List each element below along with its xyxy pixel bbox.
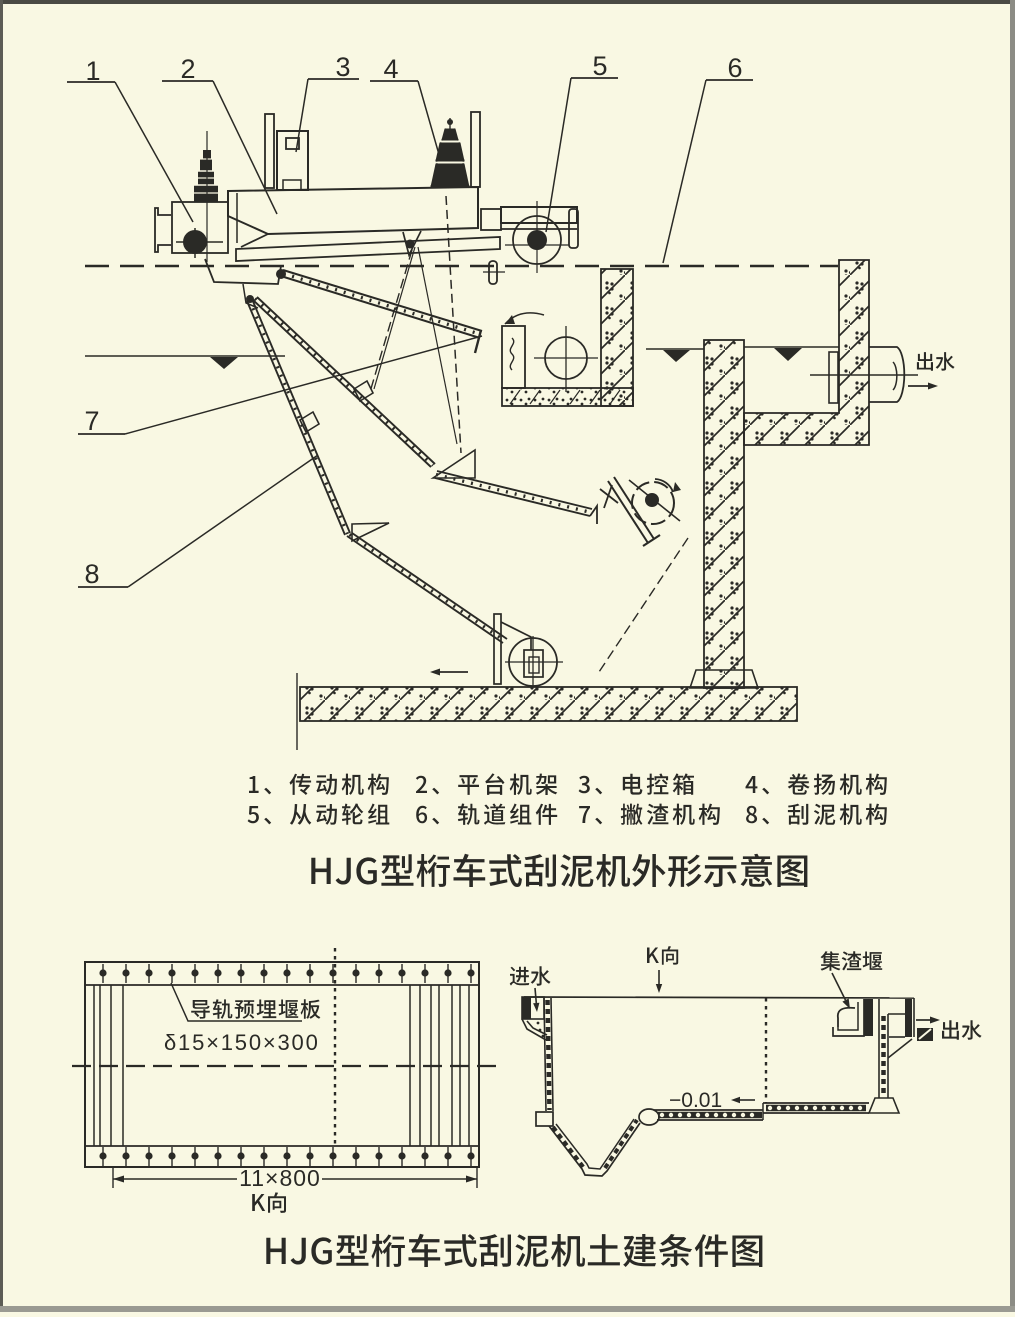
svg-text:2: 2 (180, 54, 195, 84)
svg-text:11×800: 11×800 (239, 1165, 321, 1191)
svg-text:8: 8 (84, 559, 99, 589)
svg-text:−0.01: −0.01 (669, 1089, 722, 1112)
svg-text:6: 6 (727, 53, 742, 83)
svg-text:4: 4 (383, 54, 398, 84)
svg-text:3: 3 (335, 52, 350, 82)
svg-text:δ15×150×300: δ15×150×300 (164, 1030, 320, 1055)
svg-text:5: 5 (592, 51, 607, 81)
svg-text:7: 7 (84, 406, 99, 436)
